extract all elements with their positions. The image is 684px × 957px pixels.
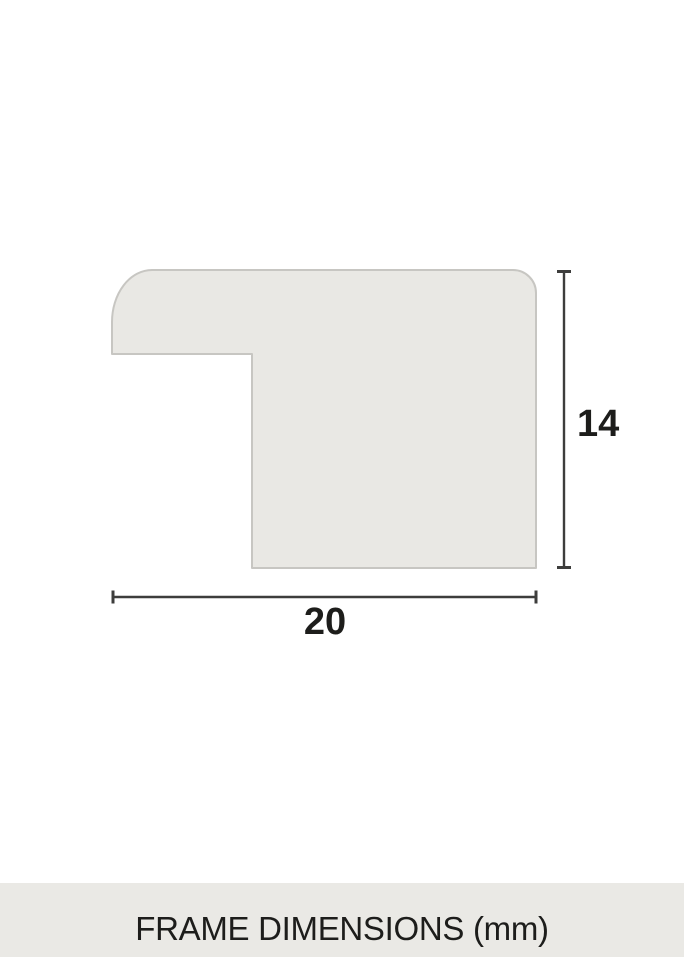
height-dimension: 14 — [557, 272, 619, 568]
width-dimension: 20 — [113, 591, 536, 644]
frame-dimensions-caption: FRAME DIMENSIONS (mm) — [135, 910, 549, 948]
width-dimension-label: 20 — [304, 601, 346, 643]
height-dimension-label: 14 — [577, 403, 619, 445]
frame-profile-diagram: 14 20 — [0, 0, 684, 700]
frame-profile-shape — [112, 270, 536, 568]
footer-caption-bar: FRAME DIMENSIONS (mm) — [0, 883, 684, 957]
page: { "diagram": { "title": "frame-moulding-… — [0, 0, 684, 957]
